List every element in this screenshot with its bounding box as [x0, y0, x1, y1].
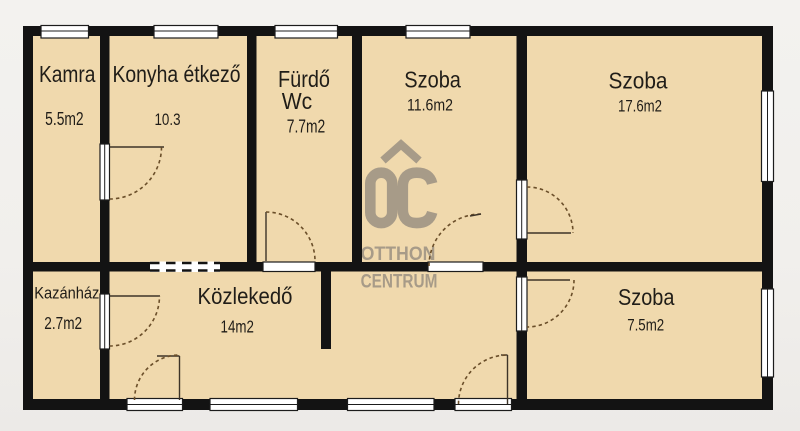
- svg-text:CENTRUM: CENTRUM: [361, 271, 438, 292]
- svg-text:Kazánház: Kazánház: [34, 284, 99, 303]
- svg-text:7.5m2: 7.5m2: [627, 316, 664, 335]
- svg-text:Szoba: Szoba: [609, 68, 668, 94]
- svg-text:Wc: Wc: [282, 88, 313, 114]
- svg-text:7.7m2: 7.7m2: [287, 117, 326, 137]
- svg-text:2.7m2: 2.7m2: [44, 313, 82, 333]
- svg-text:Konyha étkező: Konyha étkező: [113, 61, 241, 87]
- svg-text:5.5m2: 5.5m2: [45, 109, 84, 129]
- svg-text:Szoba: Szoba: [404, 67, 461, 93]
- svg-text:10.3: 10.3: [155, 110, 181, 129]
- svg-text:Szoba: Szoba: [618, 284, 675, 310]
- svg-text:OTTHON: OTTHON: [361, 244, 436, 265]
- svg-text:11.6m2: 11.6m2: [407, 97, 453, 115]
- svg-text:Közlekedő: Közlekedő: [198, 283, 293, 309]
- svg-text:17.6m2: 17.6m2: [618, 97, 662, 115]
- svg-text:Kamra: Kamra: [39, 61, 96, 87]
- svg-text:14m2: 14m2: [221, 317, 254, 337]
